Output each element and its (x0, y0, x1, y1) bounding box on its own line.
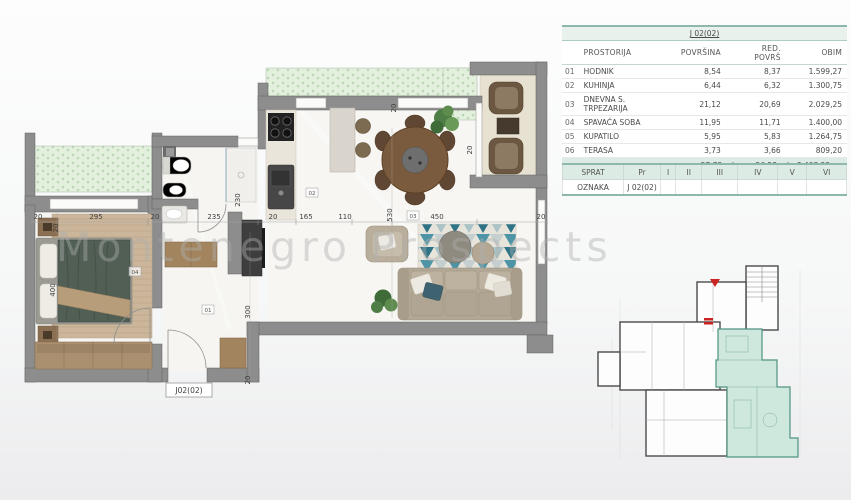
keyplan-lower-wing (646, 390, 727, 456)
col-room: PROSTORIJA (581, 41, 669, 65)
tv-screen (262, 228, 265, 268)
area-table-header-row: PROSTORIJA POVRŠINA RED. POVRŠ OBIM (562, 41, 847, 65)
terrace-slider (476, 103, 482, 177)
hall-closet (220, 338, 246, 368)
svg-text:20: 20 (537, 213, 546, 221)
svg-text:03: 03 (410, 214, 417, 220)
svg-text:20: 20 (269, 213, 278, 221)
sofa (398, 268, 522, 320)
table-row: 01HODNIK 8,548,371.599,27 (562, 65, 847, 79)
svg-text:20: 20 (244, 376, 252, 385)
bedroom-terrace-greenery (33, 146, 152, 192)
svg-text:20: 20 (390, 104, 398, 113)
coffee-table (439, 231, 471, 263)
living-window (398, 98, 468, 108)
terrace-table (497, 118, 519, 134)
unit-label: J02(02) (166, 383, 212, 397)
pillow (378, 233, 397, 250)
keyplan-left-wing (620, 322, 720, 390)
table-row: 02KUHINJA 6,446,321.300,75 (562, 79, 847, 93)
area-table-title: J 02(02) (690, 29, 720, 38)
bathroom-window (238, 138, 258, 146)
kitchen-window (296, 98, 326, 108)
coffee-table (472, 242, 494, 264)
oznaka-value: J 02(02) (624, 180, 661, 196)
svg-text:400: 400 (49, 283, 57, 296)
table-row: 04SPAVAĆA SOBA 11,9511,711.400,00 (562, 116, 847, 130)
svg-text:450: 450 (430, 213, 443, 221)
svg-text:20: 20 (151, 213, 160, 221)
svg-text:01: 01 (205, 308, 212, 314)
kitchen-island (330, 108, 355, 172)
svg-text:235: 235 (207, 213, 220, 221)
keyplan-side-room (598, 352, 620, 386)
table-row: 06TERASA 3,733,66809,20 (562, 144, 847, 158)
svg-text:J02(02): J02(02) (174, 386, 202, 395)
svg-text:02: 02 (309, 191, 316, 197)
col-red-area: RED. POVRŠ (738, 41, 793, 65)
pillow (40, 244, 57, 278)
floor-table-header-row: SPRAT Pr I II III IV V VI (563, 164, 847, 180)
table-row: 05KUPATILO 5,955,831.264,75 (562, 130, 847, 144)
floor-table: SPRAT Pr I II III IV V VI OZNAKA J 02(02… (562, 163, 847, 196)
tv-unit (242, 220, 262, 276)
keyplan-unit-highlight (716, 329, 798, 457)
svg-text:20: 20 (34, 213, 43, 221)
bar-stool (356, 143, 371, 158)
col-area: POVRŠINA (669, 41, 738, 65)
key-plan (598, 266, 800, 460)
side-window (538, 200, 545, 264)
svg-text:110: 110 (338, 213, 351, 221)
table-row: 03DNEVNA S. TRPEZARIJA 21,1220,692.029,2… (562, 93, 847, 116)
oznaka-label: OZNAKA (563, 180, 624, 196)
bar-stool (356, 119, 371, 134)
svg-text:10: 10 (241, 249, 249, 258)
floor-table-data-row: OZNAKA J 02(02) (563, 180, 847, 196)
svg-text:230: 230 (234, 193, 242, 206)
svg-text:530: 530 (386, 208, 394, 221)
svg-text:20: 20 (52, 224, 60, 233)
col-perimeter: OBIM (793, 41, 847, 65)
svg-text:20: 20 (466, 146, 474, 155)
bedroom-window (50, 199, 138, 209)
svg-text:04: 04 (132, 270, 139, 276)
floorplan-page: 20 295 20 235 20 165 110 450 20 20 400 2… (0, 0, 851, 500)
svg-text:295: 295 (89, 213, 102, 221)
svg-text:165: 165 (299, 213, 312, 221)
bedroom (36, 214, 152, 344)
stove (268, 113, 294, 141)
pillow (493, 281, 512, 298)
area-table-title-row: J 02(02) (562, 26, 847, 41)
svg-text:300: 300 (244, 305, 252, 318)
area-table: J 02(02) PROSTORIJA POVRŠINA RED. POVRŠ … (562, 25, 847, 174)
